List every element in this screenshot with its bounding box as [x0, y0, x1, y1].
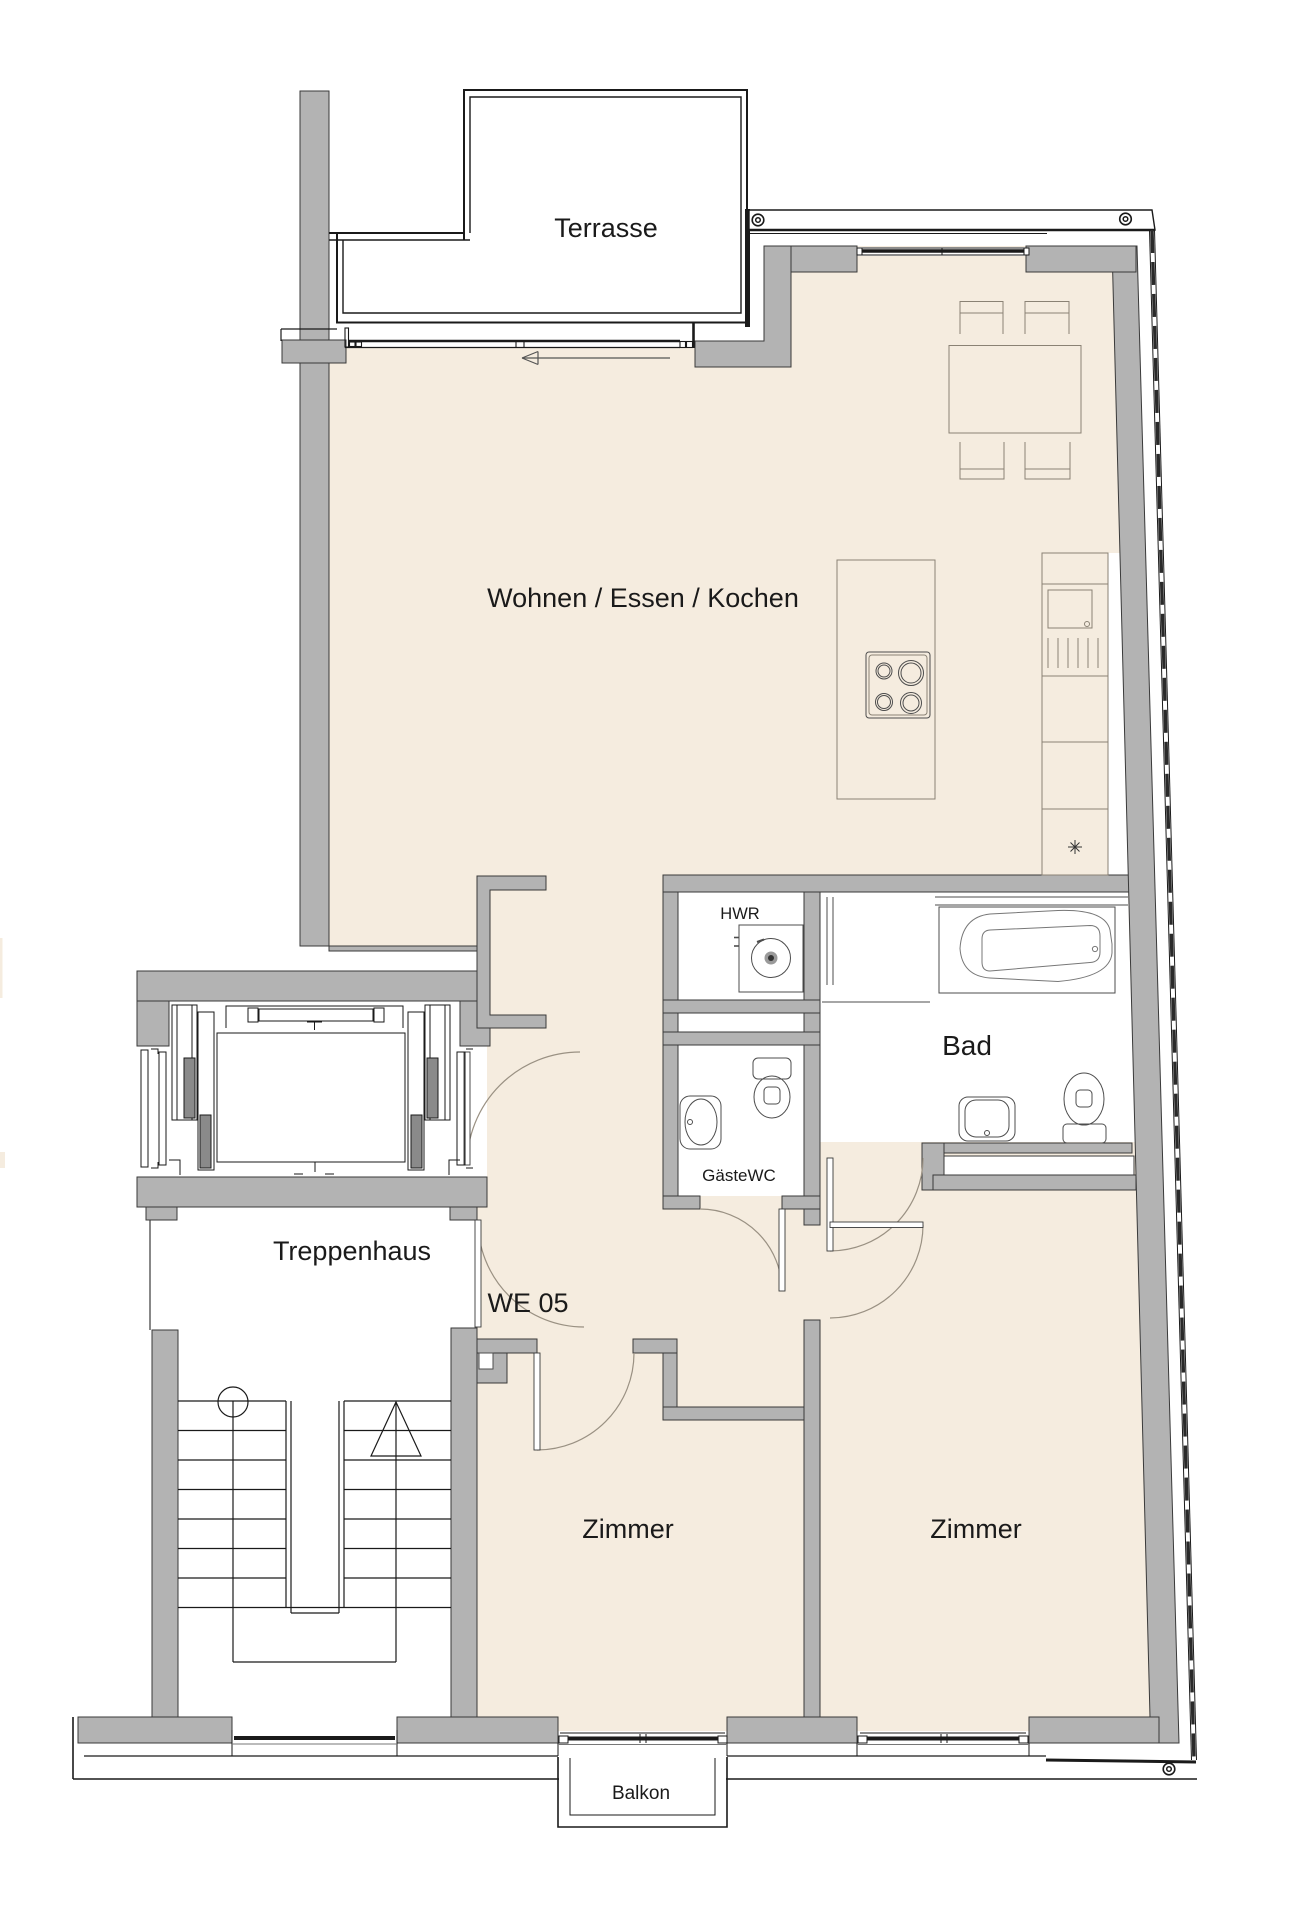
svg-text:Terrasse: Terrasse: [554, 213, 658, 243]
svg-text:Treppenhaus: Treppenhaus: [273, 1236, 431, 1266]
svg-text:GästeWC: GästeWC: [702, 1166, 776, 1185]
svg-text:Wohnen / Essen / Kochen: Wohnen / Essen / Kochen: [487, 583, 799, 613]
svg-text:Zimmer: Zimmer: [930, 1514, 1021, 1544]
svg-text:HWR: HWR: [720, 905, 759, 923]
svg-text:Zimmer: Zimmer: [582, 1514, 673, 1544]
svg-text:WE 05: WE 05: [487, 1288, 568, 1318]
svg-text:Balkon: Balkon: [612, 1783, 670, 1804]
svg-text:Bad: Bad: [942, 1030, 992, 1061]
